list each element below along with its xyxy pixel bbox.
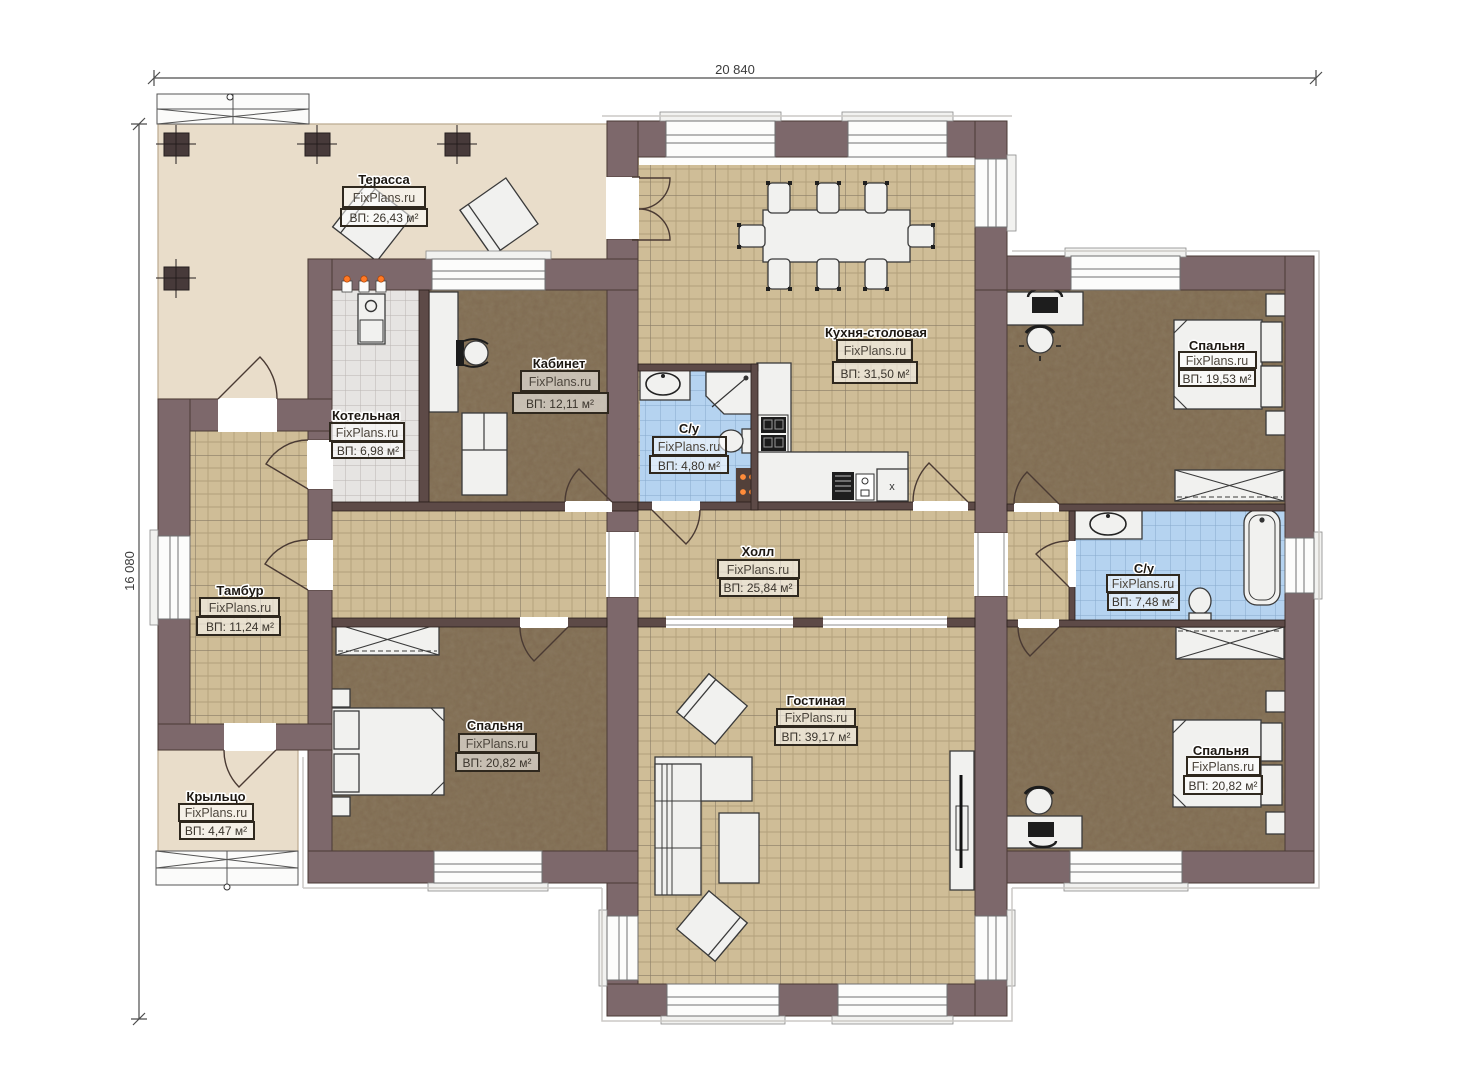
svg-text:ВП: 7,48 м²: ВП: 7,48 м² xyxy=(1112,595,1174,609)
svg-text:ВП: 11,24 м²: ВП: 11,24 м² xyxy=(206,620,274,634)
svg-text:С/у: С/у xyxy=(1134,561,1155,576)
svg-text:FixPlans.ru: FixPlans.ru xyxy=(1112,577,1175,591)
svg-text:ВП: 39,17 м²: ВП: 39,17 м² xyxy=(782,730,851,744)
svg-text:x: x xyxy=(889,481,895,493)
svg-text:ВП: 25,84 м²: ВП: 25,84 м² xyxy=(724,581,793,595)
svg-text:Крыльцо: Крыльцо xyxy=(186,789,245,804)
svg-text:16 080: 16 080 xyxy=(122,551,137,591)
svg-text:Терасса: Терасса xyxy=(358,172,410,187)
svg-text:ВП: 31,50 м²: ВП: 31,50 м² xyxy=(841,367,910,381)
svg-text:Спальня: Спальня xyxy=(1193,743,1249,758)
svg-text:FixPlans.ru: FixPlans.ru xyxy=(336,426,399,440)
svg-text:FixPlans.ru: FixPlans.ru xyxy=(1192,760,1255,774)
svg-text:FixPlans.ru: FixPlans.ru xyxy=(1186,354,1249,368)
svg-text:Кухня-столовая: Кухня-столовая xyxy=(825,325,927,340)
svg-text:20 840: 20 840 xyxy=(715,62,755,77)
svg-text:ВП: 4,80 м²: ВП: 4,80 м² xyxy=(658,459,720,473)
svg-text:FixPlans.ru: FixPlans.ru xyxy=(353,191,416,205)
svg-text:Холл: Холл xyxy=(742,544,775,559)
svg-text:ВП: 12,11 м²: ВП: 12,11 м² xyxy=(526,397,594,411)
svg-text:ВП: 19,53 м²: ВП: 19,53 м² xyxy=(1183,372,1252,386)
svg-text:Тамбур: Тамбур xyxy=(216,583,263,598)
svg-text:FixPlans.ru: FixPlans.ru xyxy=(785,711,848,725)
svg-text:Гостиная: Гостиная xyxy=(787,693,846,708)
svg-text:Спальня: Спальня xyxy=(1189,338,1245,353)
svg-text:Котельная: Котельная xyxy=(332,408,400,423)
svg-text:FixPlans.ru: FixPlans.ru xyxy=(727,563,790,577)
svg-text:Кабинет: Кабинет xyxy=(533,356,586,371)
svg-text:FixPlans.ru: FixPlans.ru xyxy=(209,601,272,615)
svg-text:FixPlans.ru: FixPlans.ru xyxy=(658,440,721,454)
svg-text:С/у: С/у xyxy=(679,421,700,436)
svg-text:ВП: 4,47 м²: ВП: 4,47 м² xyxy=(185,824,247,838)
svg-text:FixPlans.ru: FixPlans.ru xyxy=(844,344,907,358)
svg-text:ВП: 6,98 м²: ВП: 6,98 м² xyxy=(337,444,399,458)
svg-text:ВП: 20,82 м²: ВП: 20,82 м² xyxy=(1189,779,1258,793)
svg-text:FixPlans.ru: FixPlans.ru xyxy=(466,737,529,751)
svg-text:FixPlans.ru: FixPlans.ru xyxy=(529,375,592,389)
svg-text:FixPlans.ru: FixPlans.ru xyxy=(185,806,248,820)
svg-text:ВП: 26,43 м²: ВП: 26,43 м² xyxy=(350,211,419,225)
svg-text:ВП: 20,82 м²: ВП: 20,82 м² xyxy=(463,756,532,770)
svg-text:Спальня: Спальня xyxy=(467,718,523,733)
